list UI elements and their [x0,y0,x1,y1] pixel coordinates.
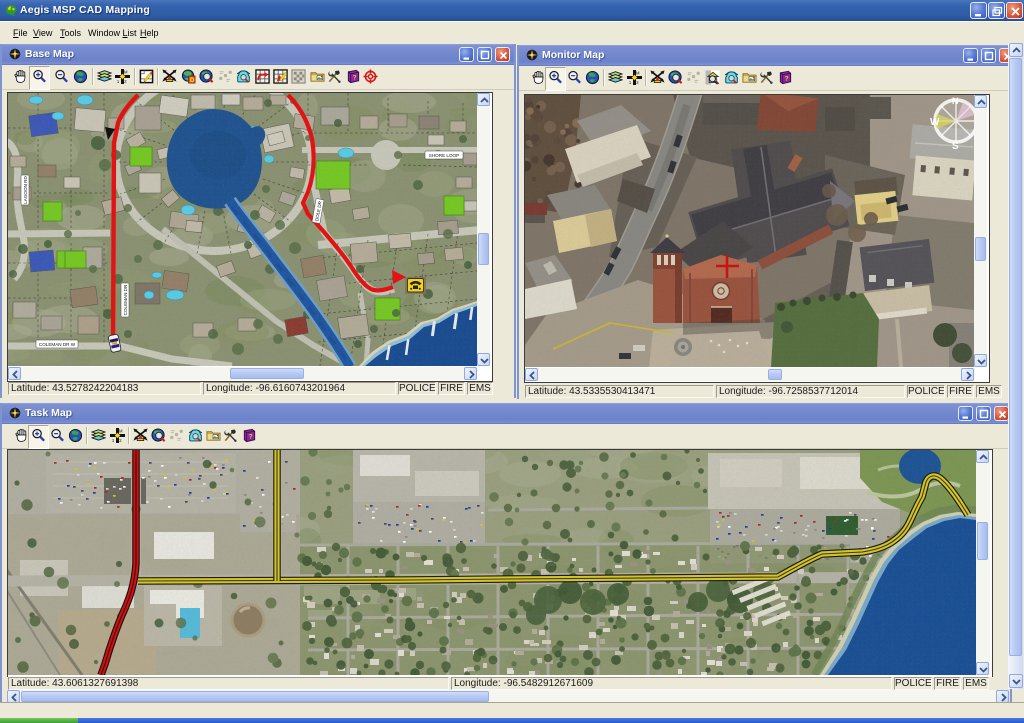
svg-text:COLEMAN DR W: COLEMAN DR W [39,342,76,347]
svg-text:W: W [930,117,940,128]
svg-text:S: S [952,141,959,152]
svg-text:SHORE LOOP: SHORE LOOP [429,153,459,158]
svg-text:COLEMAN DR: COLEMAN DR [123,284,128,315]
svg-text:N: N [952,96,959,106]
svg-text:LAGOON RD: LAGOON RD [23,176,28,204]
